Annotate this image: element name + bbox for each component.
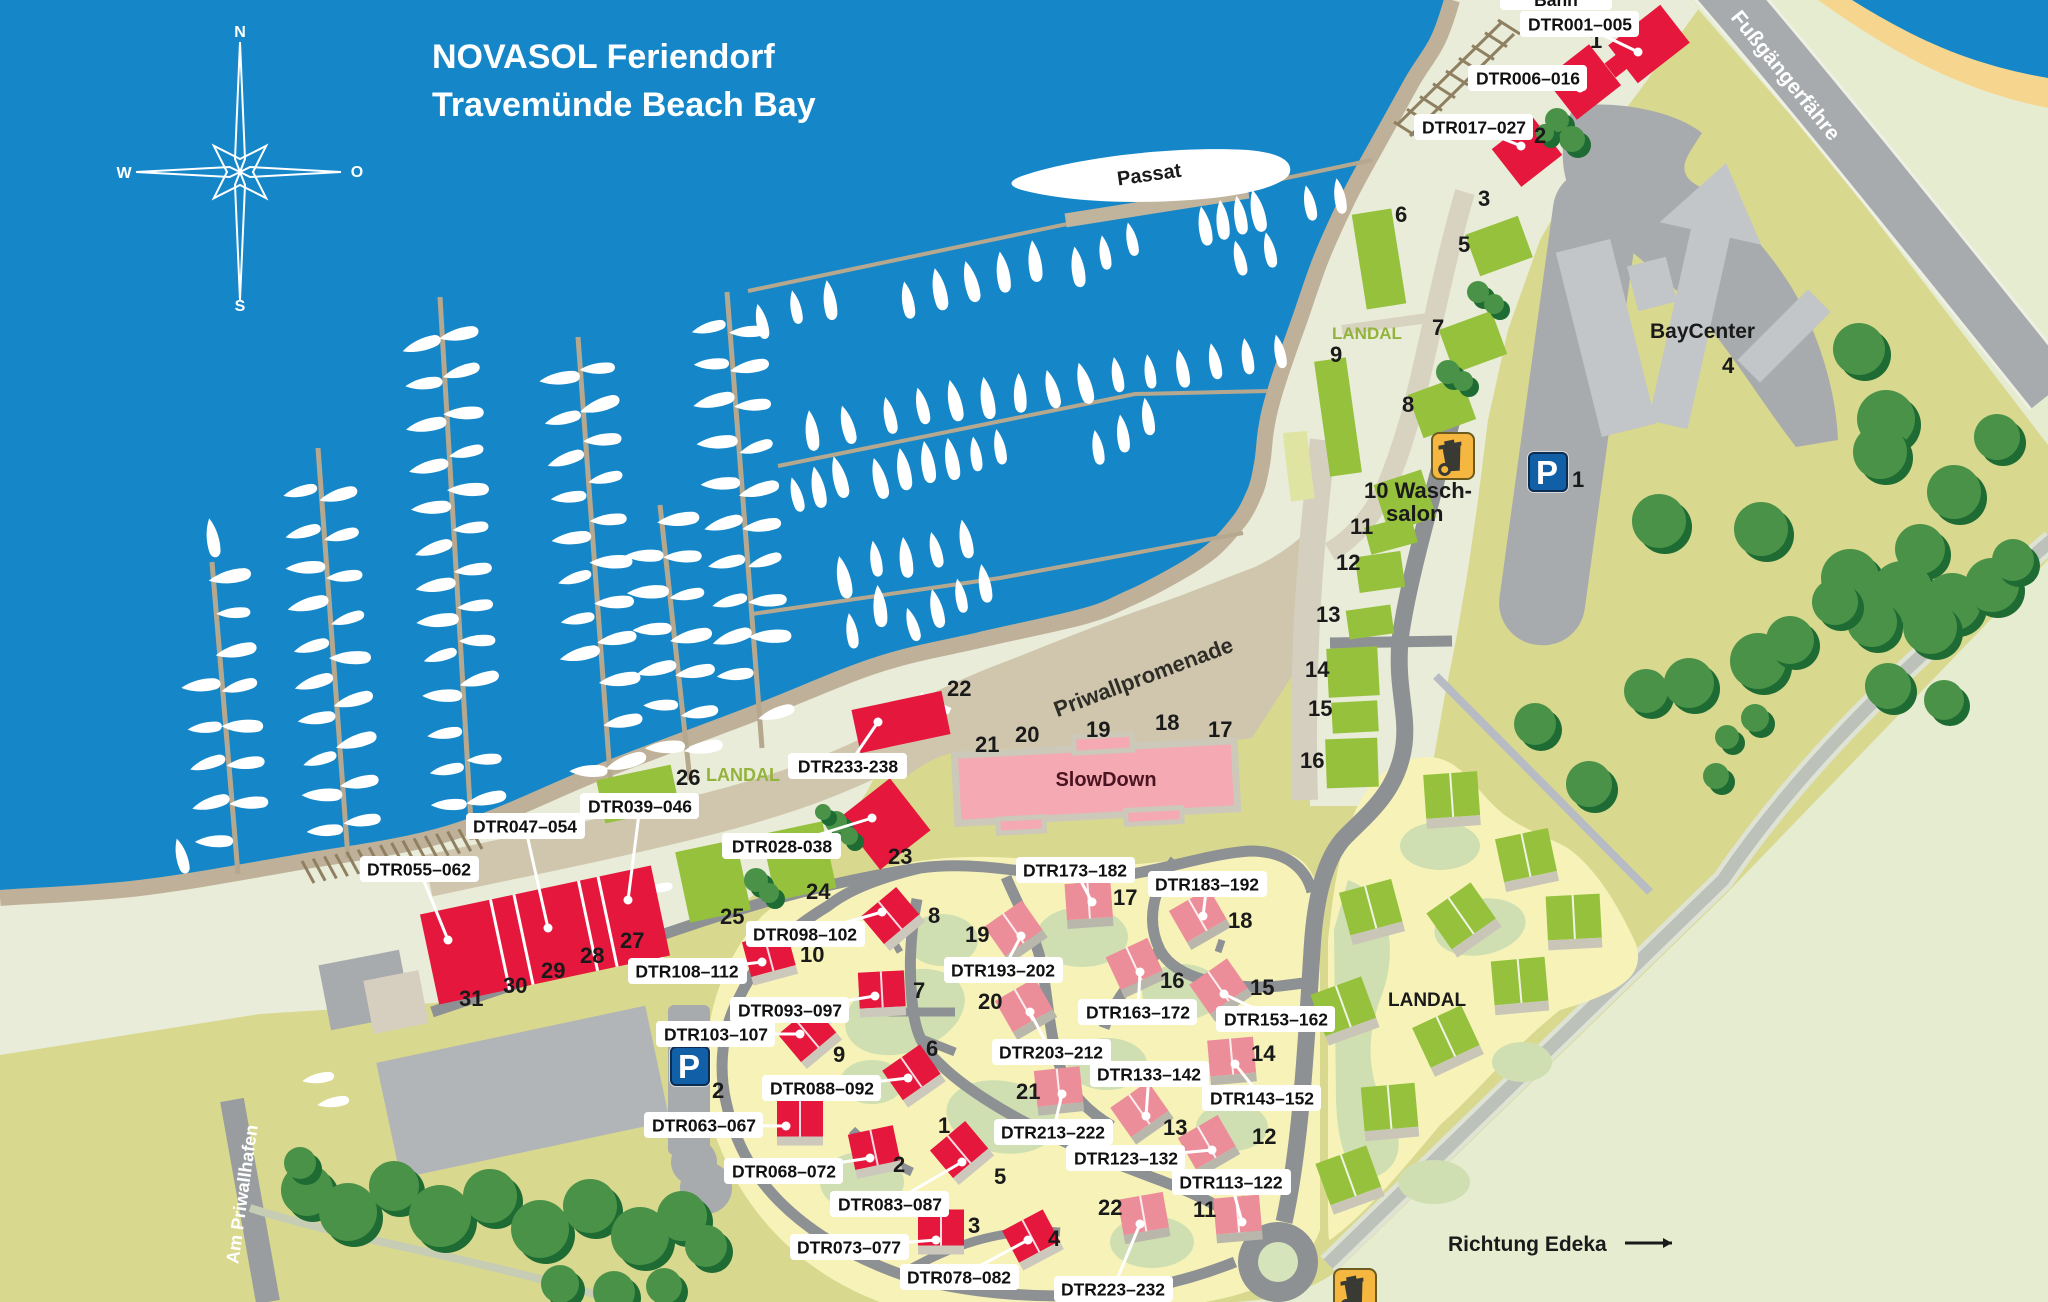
svg-text:21: 21 — [1016, 1079, 1040, 1104]
svg-text:13: 13 — [1163, 1115, 1187, 1140]
svg-text:9: 9 — [1330, 342, 1342, 367]
svg-text:LANDAL: LANDAL — [1332, 324, 1402, 343]
svg-text:DTR143–152: DTR143–152 — [1210, 1088, 1314, 1108]
svg-text:12: 12 — [1252, 1124, 1276, 1149]
svg-text:19: 19 — [1086, 717, 1110, 742]
svg-text:DTR173–182: DTR173–182 — [1023, 860, 1127, 880]
svg-text:12: 12 — [1336, 550, 1360, 575]
svg-text:DTR193–202: DTR193–202 — [951, 960, 1055, 980]
svg-text:16: 16 — [1300, 748, 1324, 773]
svg-text:Richtung Edeka: Richtung Edeka — [1448, 1233, 1607, 1256]
svg-text:27: 27 — [620, 928, 644, 953]
svg-text:6: 6 — [1395, 202, 1407, 227]
svg-text:18: 18 — [1155, 710, 1179, 735]
svg-text:17: 17 — [1208, 717, 1232, 742]
svg-text:LANDAL: LANDAL — [706, 765, 780, 785]
svg-text:10 Wasch-: 10 Wasch- — [1364, 478, 1472, 503]
svg-text:DTR001–005: DTR001–005 — [1528, 14, 1632, 34]
svg-text:7: 7 — [913, 978, 925, 1003]
svg-text:6: 6 — [926, 1036, 938, 1061]
svg-text:DTR103–107: DTR103–107 — [664, 1024, 768, 1044]
svg-text:29: 29 — [541, 958, 565, 983]
svg-text:21: 21 — [975, 732, 999, 757]
svg-text:DTR063–067: DTR063–067 — [652, 1115, 756, 1135]
svg-text:LANDAL: LANDAL — [1388, 990, 1466, 1011]
svg-text:15: 15 — [1308, 696, 1332, 721]
svg-text:DTR073–077: DTR073–077 — [797, 1237, 901, 1257]
svg-text:DTR108–112: DTR108–112 — [635, 961, 738, 981]
svg-text:DTR163–172: DTR163–172 — [1086, 1002, 1190, 1022]
svg-text:8: 8 — [928, 903, 940, 928]
svg-text:5: 5 — [1458, 232, 1470, 257]
svg-text:20: 20 — [978, 989, 1002, 1014]
svg-text:17: 17 — [1113, 885, 1137, 910]
svg-text:BayCenter: BayCenter — [1650, 320, 1755, 343]
svg-text:9: 9 — [833, 1042, 845, 1067]
svg-text:salon: salon — [1386, 501, 1443, 526]
svg-text:24: 24 — [806, 879, 831, 904]
svg-text:4: 4 — [1722, 353, 1735, 378]
svg-text:14: 14 — [1305, 657, 1330, 682]
svg-text:DTR098–102: DTR098–102 — [753, 924, 857, 944]
svg-text:DTR123–132: DTR123–132 — [1074, 1148, 1178, 1168]
svg-text:DTR088–092: DTR088–092 — [770, 1078, 874, 1098]
svg-text:3: 3 — [968, 1213, 980, 1238]
svg-text:DTR006–016: DTR006–016 — [1476, 68, 1580, 88]
svg-text:28: 28 — [580, 943, 604, 968]
svg-text:P: P — [678, 1048, 700, 1085]
svg-text:19: 19 — [965, 922, 989, 947]
svg-text:P: P — [1536, 454, 1558, 491]
svg-text:DTR083–087: DTR083–087 — [838, 1194, 942, 1214]
svg-text:Bahn: Bahn — [1534, 0, 1578, 10]
svg-text:2: 2 — [712, 1078, 724, 1103]
svg-text:DTR153–162: DTR153–162 — [1224, 1009, 1328, 1029]
svg-text:22: 22 — [947, 676, 971, 701]
svg-text:31: 31 — [459, 986, 483, 1011]
svg-text:11: 11 — [1193, 1197, 1216, 1222]
svg-text:20: 20 — [1015, 722, 1039, 747]
svg-text:DTR017–027: DTR017–027 — [1422, 117, 1526, 137]
svg-text:DTR068–072: DTR068–072 — [732, 1161, 836, 1181]
svg-text:DTR093–097: DTR093–097 — [738, 1000, 842, 1020]
svg-text:DTR028-038: DTR028-038 — [732, 836, 832, 856]
svg-text:DTR223–232: DTR223–232 — [1061, 1279, 1165, 1299]
svg-text:16: 16 — [1160, 968, 1184, 993]
svg-text:DTR078–082: DTR078–082 — [907, 1267, 1011, 1287]
svg-text:26: 26 — [676, 765, 700, 790]
svg-text:18: 18 — [1228, 908, 1252, 933]
svg-text:13: 13 — [1316, 602, 1340, 627]
svg-text:4: 4 — [1048, 1226, 1061, 1251]
svg-text:1: 1 — [938, 1113, 950, 1138]
svg-text:2: 2 — [1534, 123, 1546, 148]
svg-text:DTR047–054: DTR047–054 — [473, 816, 577, 836]
svg-text:SlowDown: SlowDown — [1055, 769, 1156, 791]
svg-text:3: 3 — [1478, 186, 1490, 211]
svg-text:25: 25 — [720, 904, 744, 929]
svg-text:DTR039–046: DTR039–046 — [588, 796, 692, 816]
svg-text:DTR133–142: DTR133–142 — [1097, 1064, 1201, 1084]
svg-text:22: 22 — [1098, 1195, 1122, 1220]
svg-text:O: O — [351, 164, 363, 181]
svg-text:11: 11 — [1350, 514, 1373, 539]
svg-text:15: 15 — [1250, 975, 1274, 1000]
svg-text:8: 8 — [1402, 392, 1414, 417]
svg-text:DTR055–062: DTR055–062 — [367, 859, 471, 879]
svg-text:2: 2 — [893, 1152, 905, 1177]
svg-text:DTR233-238: DTR233-238 — [798, 756, 898, 776]
svg-text:Travemünde Beach Bay: Travemünde Beach Bay — [432, 86, 816, 124]
svg-text:30: 30 — [503, 973, 527, 998]
svg-text:DTR213–222: DTR213–222 — [1001, 1122, 1105, 1142]
svg-text:W: W — [116, 165, 132, 182]
svg-text:14: 14 — [1251, 1041, 1276, 1066]
svg-text:DTR183–192: DTR183–192 — [1155, 874, 1259, 894]
svg-text:7: 7 — [1432, 315, 1444, 340]
svg-text:1: 1 — [1572, 467, 1584, 492]
svg-text:N: N — [234, 24, 246, 41]
svg-text:S: S — [235, 298, 246, 315]
svg-text:23: 23 — [888, 844, 912, 869]
svg-text:5: 5 — [994, 1164, 1006, 1189]
svg-text:DTR113–122: DTR113–122 — [1179, 1172, 1282, 1192]
svg-text:DTR203–212: DTR203–212 — [999, 1042, 1103, 1062]
